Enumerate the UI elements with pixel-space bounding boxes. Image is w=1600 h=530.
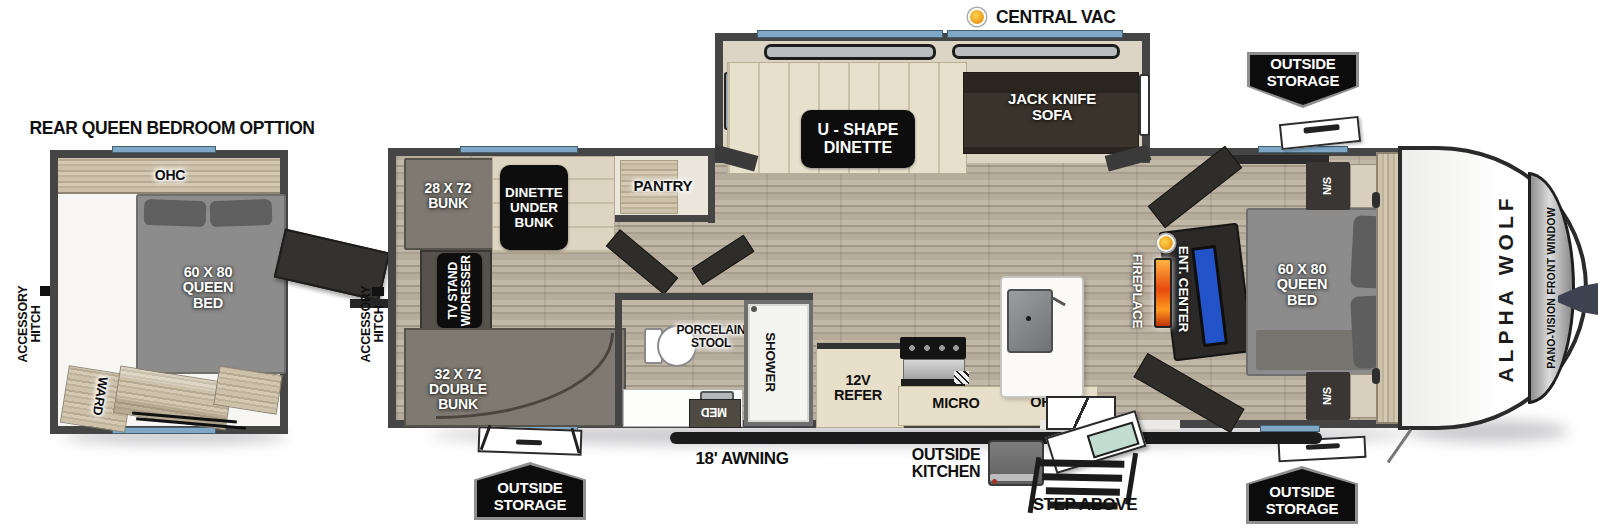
nightstand-top-label: N/S [1322,177,1334,195]
shower-head [751,306,757,312]
floorplan-stage: REAR QUEEN BEDROOM OPTTION ACCESSORY HIT… [0,0,1600,530]
micro-label: MICRO [932,396,979,411]
step-2 [1042,473,1122,481]
central-vac-label: CENTRAL VAC [996,8,1115,27]
badge-face: OUTSIDE STORAGE [1250,55,1356,105]
badge-face: OUTSIDE STORAGE [1249,469,1355,521]
bunk-28x72-label: 28 X 72 BUNK [425,181,472,211]
step-above-label: STEP ABOVE [1033,496,1138,514]
badge-face: OUTSIDE STORAGE [477,465,583,517]
counter-hatch-mark [954,371,969,384]
badge-outside-storage-bottom-right: OUTSIDE STORAGE [1246,466,1358,524]
rear-queen-bed-label: 60 X 80 QUEEN BED [183,265,234,311]
u-shape-dinette-label: U - SHAPE DINETTE [818,121,899,157]
rear-window-top [112,146,216,153]
slideout-window-strip-right [947,30,1123,38]
island-sink [1007,289,1053,353]
slideout-window-right [952,44,1120,59]
storage-door-handle [516,440,542,446]
rear-accessory-hitch-label: ACCESSORY HITCH [17,286,44,363]
tv-stand-label: TV STAND W/DRESSER [447,255,472,326]
nightstand-bottom-label: N/S [1322,387,1334,405]
rear-window-bottom [112,427,216,434]
main-window-top-left [460,146,578,153]
porcelain-stool-label: PORCELAIN STOOL [677,324,746,349]
island-faucet [1026,316,1031,321]
u-shape-dinette-chip: U - SHAPE DINETTE [801,110,915,168]
fireplace-label: FIREPLACE [1130,254,1144,329]
storage-door-slot [1303,124,1339,134]
dinette-under-bunk-label: DINETTE UNDER BUNK [505,185,563,230]
rear-bed-pillow-right [210,199,273,227]
badge-outside-storage-bottom-left: OUTSIDE STORAGE [474,462,586,520]
badge-outside-storage-top-right: OUTSIDE STORAGE [1247,52,1359,108]
storage-door-top-right [1279,116,1361,150]
slideout-end-window [1139,74,1150,136]
slideout-window-strip-left [757,30,943,38]
rear-option-title: REAR QUEEN BEDROOM OPTTION [12,119,332,138]
outside-kitchen-knob [992,479,997,484]
jack-knife-sofa-label: JACK KNIFE SOFA [1008,91,1096,123]
rear-bed-pillow-left [144,199,207,227]
awning-label: 18' AWNING [696,450,789,468]
fireplace-strip [1154,258,1172,328]
outside-kitchen-front [990,474,1038,481]
vac-outlet-icon [1157,234,1175,252]
slideout-window-left [764,44,936,60]
tv-stand-chip: TV STAND W/DRESSER [437,253,482,328]
queen-bed-label: 60 X 80 QUEEN BED [1277,262,1328,308]
outside-storage-label-top-right: OUTSIDE STORAGE [1267,56,1340,90]
brand-label: ALPHA WOLF [1495,193,1517,382]
pantry-label: PANTRY [634,178,693,194]
bath-wall-left [615,293,622,426]
ent-center-label: ENT. CENTER [1176,246,1190,332]
shower-label: SHOWER [763,332,777,392]
double-bunk-label: 32 X 72 DOUBLE BUNK [429,367,487,411]
med-label: MED [701,406,727,419]
pano-vision-window-label: PANO-VISION FRONT WINDOW [1546,207,1557,369]
stove-cooktop [900,337,966,359]
outside-storage-label-bottom-right: OUTSIDE STORAGE [1266,484,1339,518]
shower-stall [744,300,813,426]
bath-wall-top [615,293,813,300]
ward-handle-top [1372,192,1380,208]
door-mark-left [480,425,492,450]
storage-door-slot [1306,443,1340,450]
main-window-bottom-right [1260,425,1320,432]
storage-door-bottom-left [478,426,583,456]
main-accessory-hitch-label: ACCESSORY HITCH [360,286,387,363]
dinette-under-bunk-chip: DINETTE UNDER BUNK [500,165,568,250]
ward-handle-bottom [1372,368,1380,384]
rear-ohc-label: OHC [155,168,186,183]
outside-kitchen-label: OUTSIDE KITCHEN [912,447,980,481]
pantry-wall-bottom [615,215,715,222]
pantry-wall-right [708,148,715,223]
central-vac-icon [968,8,986,26]
step-1 [1038,459,1124,467]
refer-label: 12V REFER [834,373,882,404]
outside-storage-label-bottom-left: OUTSIDE STORAGE [494,480,567,514]
door-mark-right [571,428,581,454]
